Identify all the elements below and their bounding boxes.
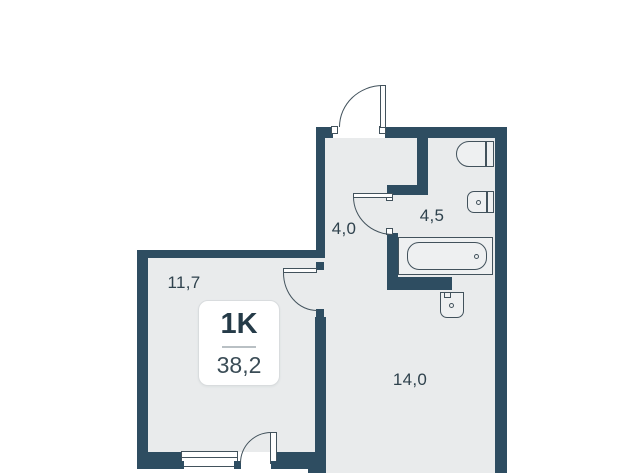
sink-divider-line — [486, 192, 488, 212]
entrance-door-jamb-left — [331, 126, 338, 134]
room-door-jamb-top — [316, 262, 324, 270]
wall-top-right-segment — [385, 127, 507, 138]
room-area-label-hallway: 4,0 — [332, 219, 357, 239]
sink-faucet-dot — [476, 200, 481, 205]
bathtub-drain-dot — [474, 254, 479, 259]
room-door-leaf — [283, 268, 317, 273]
wall-bathroom-upper-left — [417, 138, 428, 185]
apartment-total-area: 38,2 — [217, 354, 262, 377]
bathroom-door-leaf — [353, 193, 393, 198]
wall-bottom-segment-a — [137, 452, 181, 469]
toilet-tank-line — [485, 142, 487, 166]
sink-icon — [467, 191, 494, 213]
bathtub-icon — [398, 237, 493, 275]
entrance-door-leaf — [380, 85, 386, 128]
window-glazing-line — [182, 457, 237, 458]
window-sill-left — [177, 461, 184, 469]
room-area-label-living: 11,7 — [167, 273, 200, 293]
balcony-door-leaf — [270, 432, 277, 464]
wall-living-top — [137, 250, 325, 258]
wall-bathroom-step — [387, 185, 428, 195]
apartment-type-label: 1K — [220, 310, 257, 339]
wall-bottom-stub — [308, 452, 326, 473]
toilet-icon — [456, 141, 494, 167]
badge-divider — [222, 346, 256, 348]
wall-right — [495, 127, 507, 473]
wall-living-left — [137, 258, 148, 469]
entrance-door-arc — [339, 85, 383, 127]
room-area-label-kitchen: 14,0 — [393, 370, 427, 390]
floor-plan: 4,0 4,5 11,7 14,0 1K 38,2 — [0, 0, 640, 473]
balcony-door-hinge — [271, 461, 278, 469]
wall-bathroom-lower-left — [387, 233, 398, 277]
washbasin-icon — [440, 292, 464, 318]
apartment-type-badge: 1K 38,2 — [198, 300, 280, 386]
room-door-jamb-bottom — [316, 309, 324, 317]
window — [181, 451, 238, 467]
wall-bathroom-bottom — [387, 277, 452, 290]
washbasin-tap — [444, 292, 451, 298]
washbasin-drain-dot — [449, 303, 454, 308]
room-area-label-bathroom: 4,5 — [420, 206, 445, 226]
wall-room-divider — [315, 317, 326, 452]
wall-hallway-left — [316, 138, 325, 250]
